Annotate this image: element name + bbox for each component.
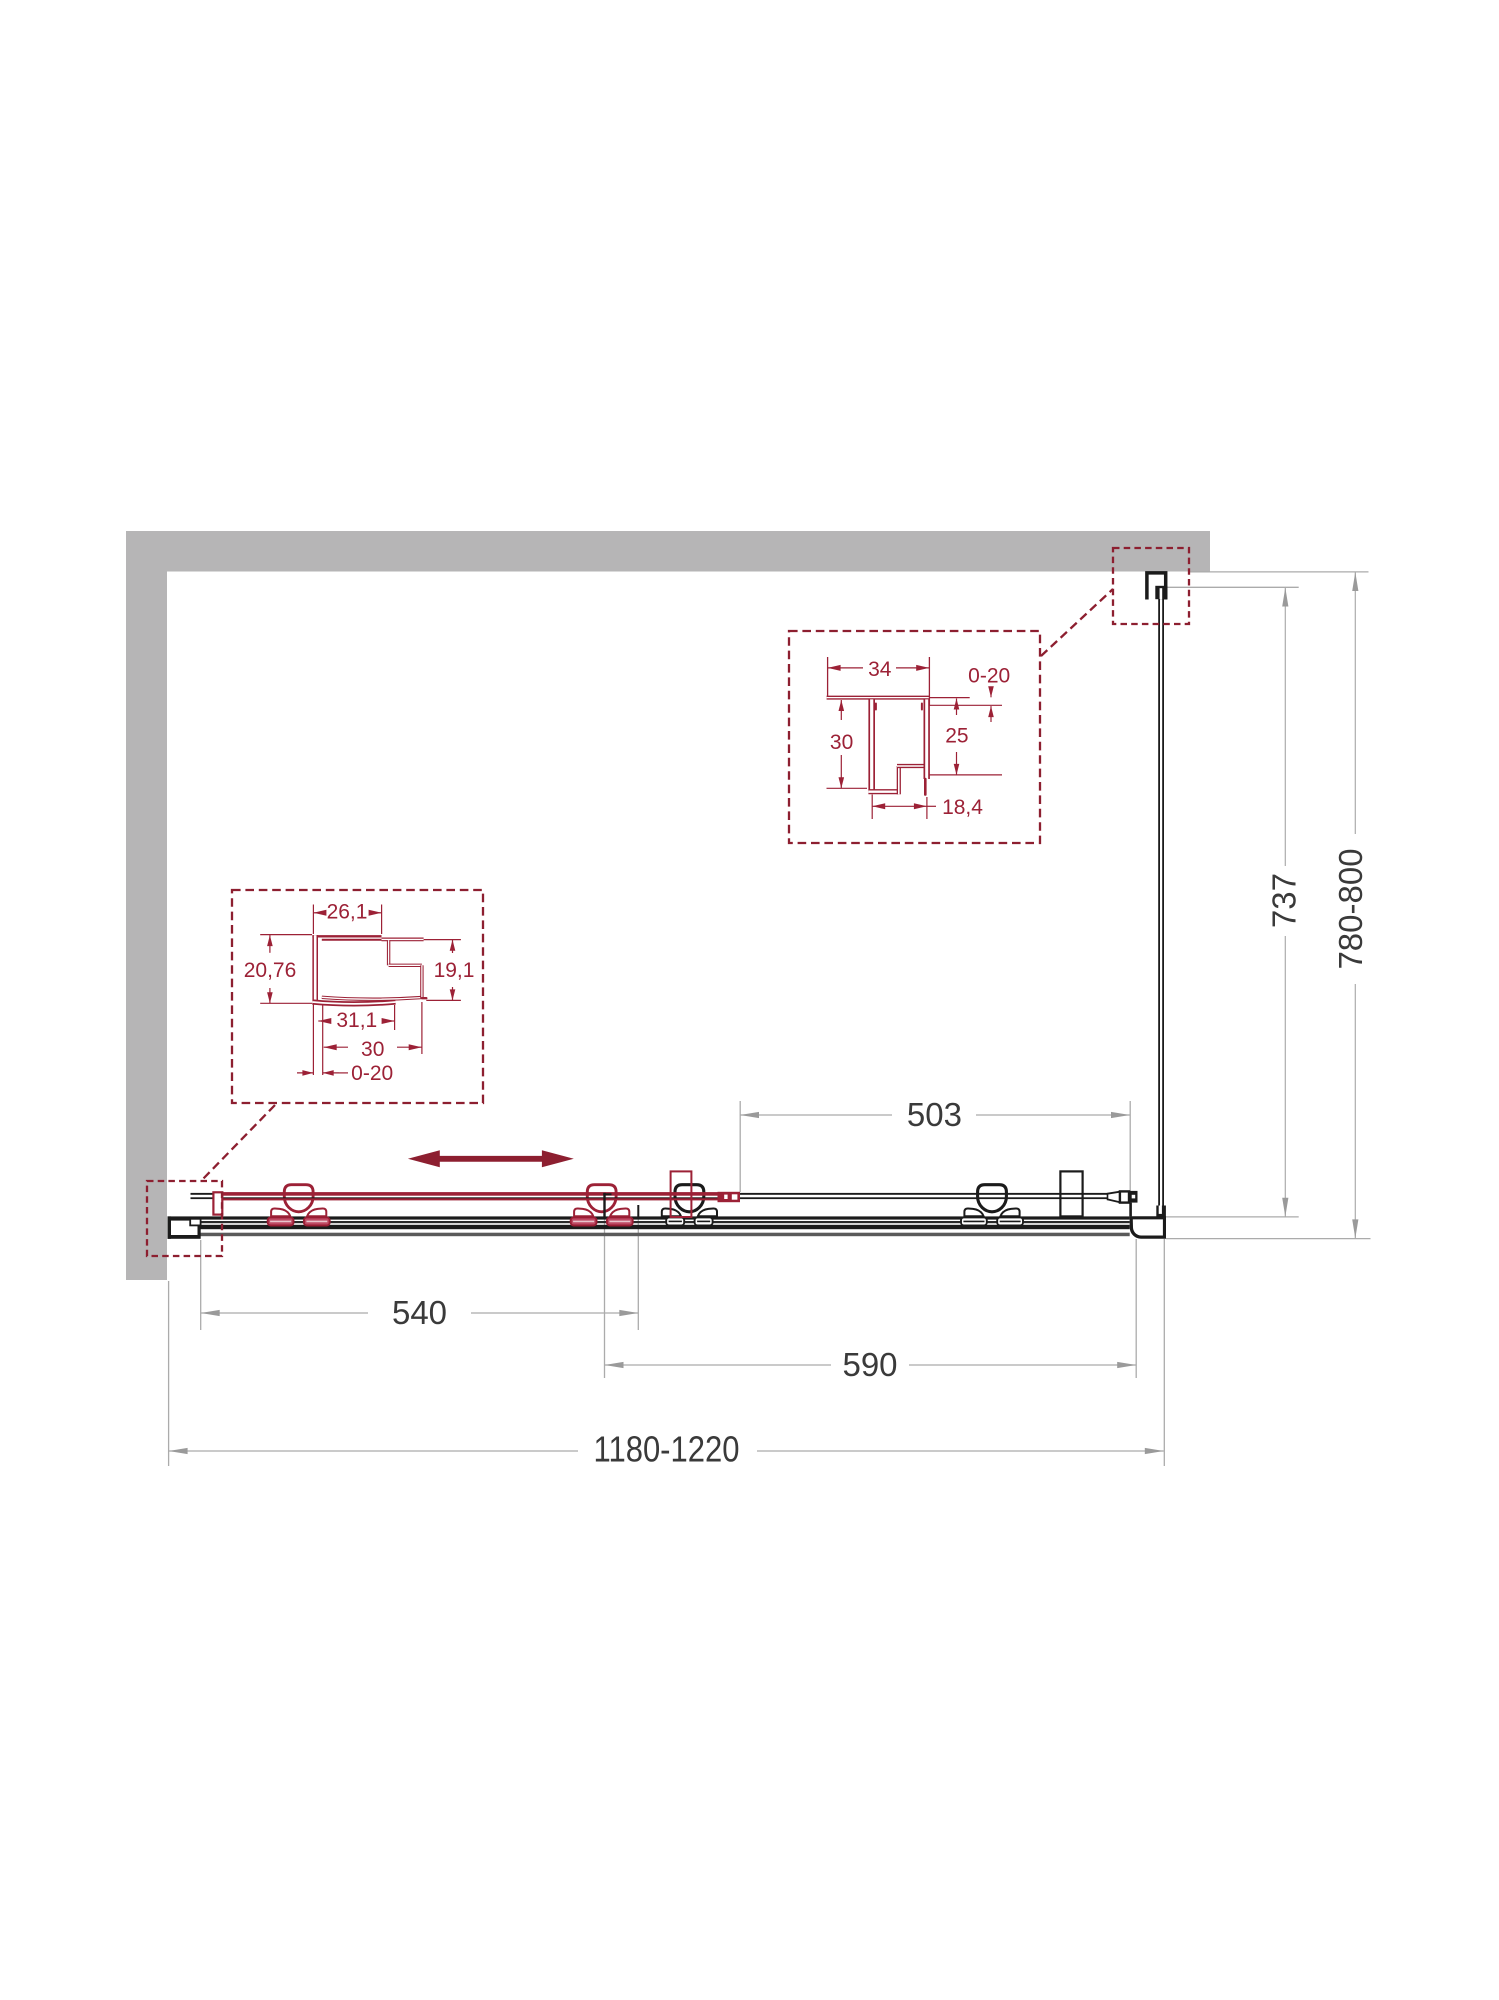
svg-text:34: 34 <box>868 658 892 681</box>
svg-text:20,76: 20,76 <box>244 959 297 982</box>
svg-text:30: 30 <box>361 1038 384 1061</box>
svg-text:19,1: 19,1 <box>434 959 475 982</box>
svg-text:26,1: 26,1 <box>327 901 368 924</box>
svg-text:503: 503 <box>907 1096 962 1133</box>
svg-text:540: 540 <box>392 1294 447 1331</box>
svg-text:30: 30 <box>830 731 853 754</box>
svg-text:737: 737 <box>1266 873 1303 928</box>
svg-text:1180-1220: 1180-1220 <box>594 1430 740 1470</box>
svg-text:18,4: 18,4 <box>942 796 983 819</box>
svg-text:780-800: 780-800 <box>1332 848 1369 969</box>
svg-text:0-20: 0-20 <box>968 665 1010 688</box>
svg-text:590: 590 <box>842 1346 897 1383</box>
svg-text:25: 25 <box>945 724 968 747</box>
svg-text:0-20: 0-20 <box>351 1062 393 1085</box>
svg-text:31,1: 31,1 <box>336 1009 377 1032</box>
